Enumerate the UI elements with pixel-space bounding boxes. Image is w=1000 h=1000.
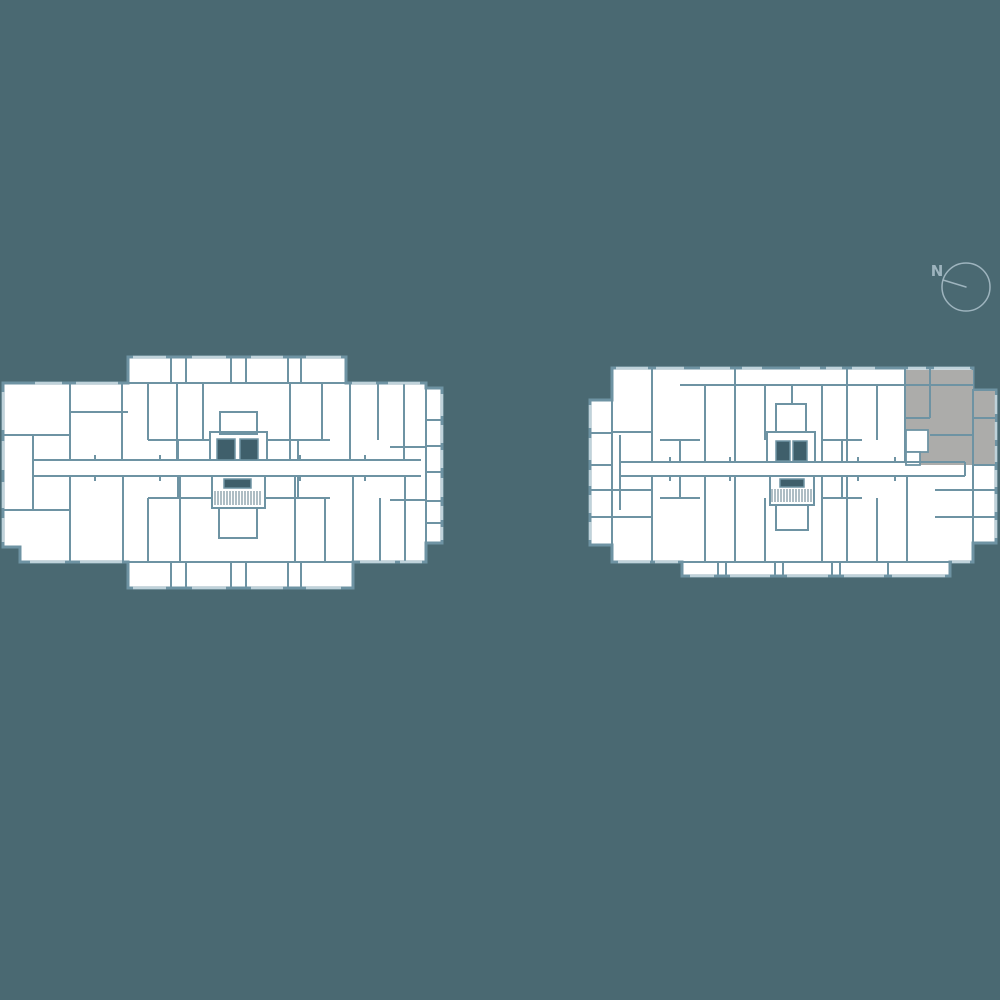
elevator-shaft-icon — [240, 439, 258, 460]
stair-landing — [224, 479, 251, 488]
site-plan-svg: N — [0, 0, 1000, 1000]
canvas-background: N — [0, 0, 1000, 1000]
north-compass: N — [931, 262, 990, 311]
highlighted-unit-balcony[interactable] — [973, 390, 996, 465]
highlighted-unit-bathroom — [906, 430, 928, 452]
compass-needle-icon — [943, 280, 966, 287]
elevator-shaft-icon — [793, 441, 807, 461]
plan-left-outline — [3, 357, 442, 588]
floor-plan-right[interactable] — [590, 368, 996, 576]
highlighted-unit-wc — [906, 452, 920, 465]
elevator-shaft-icon — [776, 441, 790, 461]
stair-landing — [780, 479, 804, 487]
floor-plan-left[interactable] — [3, 357, 442, 588]
elevator-shaft-icon — [217, 439, 235, 460]
compass-north-label: N — [931, 262, 944, 280]
